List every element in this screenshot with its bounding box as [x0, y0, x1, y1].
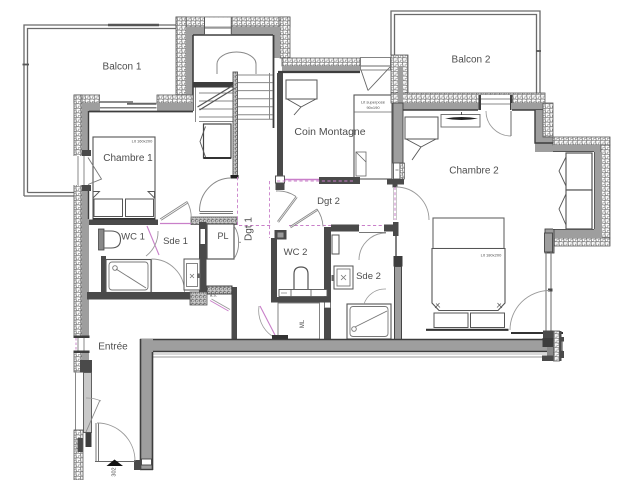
- svg-text:WC 1: WC 1: [121, 232, 145, 243]
- svg-text:Chambre 2: Chambre 2: [449, 166, 499, 177]
- svg-text:ML: ML: [300, 319, 306, 328]
- svg-text:Lit 180x200: Lit 180x200: [481, 253, 502, 258]
- svg-text:Entrée: Entrée: [98, 342, 128, 353]
- svg-text:PL: PL: [217, 231, 228, 241]
- svg-text:Sde 1: Sde 1: [163, 236, 188, 247]
- svg-text:Sde 2: Sde 2: [356, 271, 381, 282]
- svg-text:Chambre 1: Chambre 1: [103, 153, 153, 164]
- svg-text:Lit 160x200: Lit 160x200: [132, 139, 153, 144]
- svg-text:a.s.: a.s.: [210, 293, 217, 298]
- svg-text:Coin Montagne: Coin Montagne: [294, 126, 365, 138]
- svg-text:Dgt 1: Dgt 1: [244, 217, 255, 241]
- svg-text:WC 2: WC 2: [284, 247, 308, 258]
- svg-text:Dgt 2: Dgt 2: [317, 196, 340, 207]
- svg-text:Lit superposé: Lit superposé: [361, 100, 386, 105]
- svg-text:302: 302: [112, 467, 118, 476]
- svg-text:Balcon 2: Balcon 2: [452, 55, 491, 66]
- svg-text:90x190: 90x190: [366, 105, 380, 110]
- svg-text:Balcon 1: Balcon 1: [103, 62, 142, 73]
